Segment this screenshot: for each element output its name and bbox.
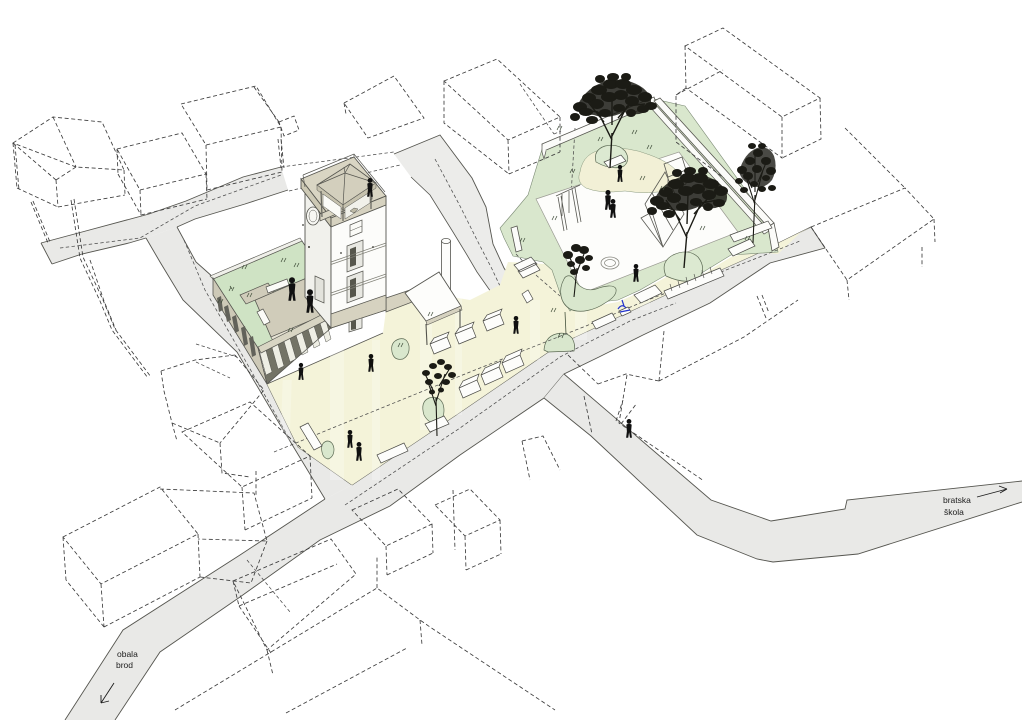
svg-text:brod: brod xyxy=(116,660,133,670)
svg-text:škola: škola xyxy=(944,507,964,517)
svg-text:obala: obala xyxy=(117,649,138,659)
svg-text:bratska: bratska xyxy=(943,495,971,505)
